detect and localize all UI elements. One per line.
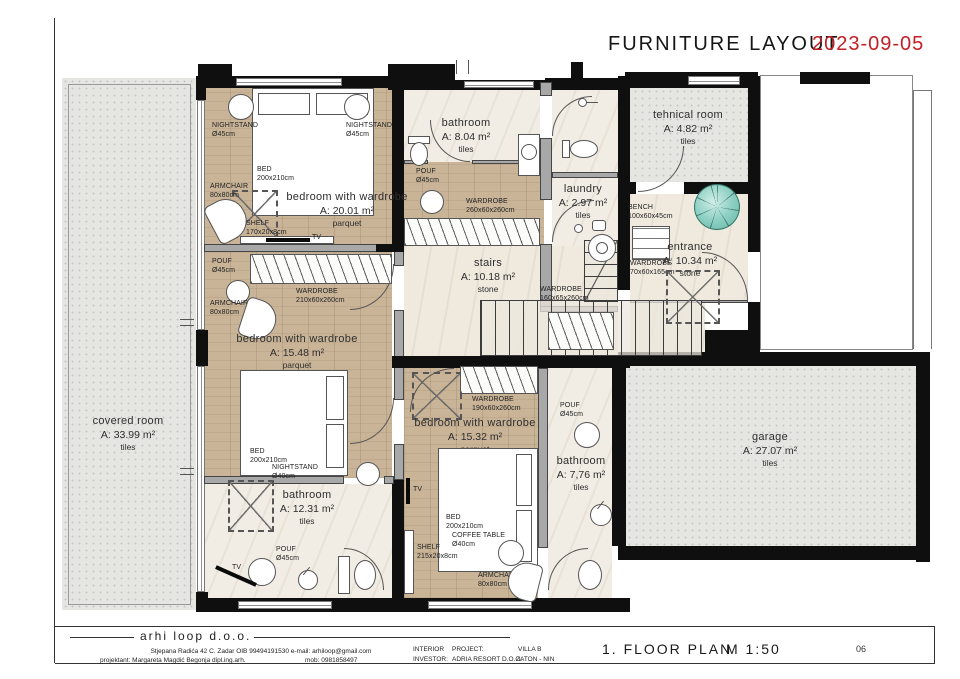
room-name: entrance [648, 240, 732, 255]
tv [406, 478, 410, 504]
room-area: A: 8.04 m² [428, 131, 504, 145]
room-name: bathroom [428, 116, 504, 131]
wall [748, 76, 760, 252]
furniture-size: Ø40cm [272, 473, 318, 482]
page-number: 06 [856, 644, 866, 654]
tv-label: TV [413, 486, 422, 495]
partition [540, 82, 552, 96]
wall [800, 72, 870, 84]
room-floor: tiles [548, 482, 614, 493]
sheet-border-left [54, 18, 55, 663]
furniture-label-bed1: BED 200x210cm [257, 166, 294, 184]
wall [392, 480, 404, 598]
wardrobe [548, 312, 614, 350]
room-floor: stone [446, 284, 530, 295]
laundry-fixture [574, 224, 583, 233]
sink [521, 144, 537, 160]
furniture-name: WARDROBE [466, 198, 515, 207]
room-label-covered: covered room A: 33.99 m² tiles [64, 414, 192, 454]
company-name: arhi loop d.o.o. [140, 629, 251, 643]
laundry-fixture [592, 220, 606, 231]
window [197, 100, 205, 330]
tv-label: TV [312, 234, 321, 243]
room-label-bathroom2: bathroom A: 12.31 m² tiles [240, 488, 374, 528]
sheet-border-right [934, 626, 935, 664]
pillow [516, 454, 532, 506]
toilet [570, 140, 598, 158]
partition [538, 368, 548, 548]
furniture-name: NIGHTSTAND [272, 464, 318, 473]
pillow [326, 424, 344, 468]
furniture-label-nightstand40: NIGHTSTAND Ø40cm [272, 464, 318, 482]
room-floor: tiles [548, 210, 618, 221]
room-floor: tiles [64, 442, 192, 453]
room-area: A: 33.99 m² [64, 429, 192, 443]
furniture-size: Ø45cm [560, 411, 583, 420]
footer-separator-line [55, 626, 935, 627]
room-label-garage: garage A: 27.07 m² tiles [712, 430, 828, 470]
furniture-label-wardrobe70: WARDROBE 70x60x165cm [630, 260, 664, 278]
room-area: A: 27.07 m² [712, 445, 828, 459]
company-address: Stjepana Radića 42 C. Zadar OIB 99494191… [96, 648, 426, 655]
wardrobe [460, 366, 538, 394]
furniture-label-nightstand-left: NIGHTSTAND Ø45cm [212, 122, 258, 140]
window [464, 81, 534, 88]
furniture-name: BENCH [628, 204, 673, 213]
furniture-name: ARMCHAIR [210, 300, 248, 309]
room-area: A: 15.32 m² [410, 431, 540, 445]
wardrobe [250, 254, 392, 284]
partition [394, 310, 404, 400]
toilet [410, 142, 428, 166]
project-value: VILLA B [518, 646, 542, 653]
plan-scale: M 1:50 [726, 641, 781, 657]
furniture-label-bed2: BED 200x210cm [250, 448, 287, 466]
tv [266, 238, 310, 242]
footer-dash-left [70, 637, 134, 638]
furniture-label-pouf1: POUF Ø45cm [416, 168, 439, 186]
furniture-size: Ø45cm [212, 131, 258, 140]
wall [196, 76, 206, 100]
wardrobe-dashed [666, 270, 720, 324]
room-area: A: 15.48 m² [230, 347, 364, 361]
room-area: A: 2.97 m² [548, 197, 618, 211]
mobile: mob: 0981858497 [305, 657, 357, 664]
furniture-size: 70x60x165cm [630, 269, 664, 278]
furniture-size: 260x60x260cm [466, 207, 515, 216]
room-name: bathroom [240, 488, 374, 503]
wall [748, 302, 760, 330]
wall [571, 62, 583, 84]
pouf [574, 422, 600, 448]
wall [376, 244, 404, 252]
furniture-name: POUF [416, 168, 439, 177]
window [428, 601, 532, 609]
window [236, 78, 342, 86]
furniture-label-pouf2: POUF Ø45cm [212, 258, 235, 276]
vanity [338, 556, 350, 594]
partition [384, 476, 394, 484]
furniture-size: 200x210cm [446, 523, 483, 532]
room-label-bedroom1: bedroom with wardrobe A: 20.01 m² parque… [280, 190, 414, 230]
furniture-size: Ø45cm [416, 177, 439, 186]
wall [196, 330, 208, 366]
room-floor: tiles [712, 458, 828, 469]
investor-label: INVESTOR: [413, 656, 448, 663]
furniture-name: POUF [276, 546, 299, 555]
furniture-name: NIGHTSTAND [346, 122, 392, 131]
furniture-name: POUF [560, 402, 583, 411]
room-label-bedroom2: bedroom with wardrobe A: 15.48 m² parque… [230, 332, 364, 372]
room-name: bedroom with wardrobe [410, 416, 540, 431]
coffee-table [498, 540, 524, 566]
partition [394, 444, 404, 480]
furniture-name: BED [257, 166, 294, 175]
furniture-size: Ø40cm [452, 541, 505, 550]
furniture-label-nightstand-right: NIGHTSTAND Ø45cm [346, 122, 392, 140]
toilet-tank [562, 140, 570, 158]
furniture-label-pouf3: POUF Ø45cm [276, 546, 299, 564]
furniture-size: 80x80cm [210, 192, 248, 201]
pouf [420, 190, 444, 214]
room-label-technical: tehnical room A: 4.82 m² tiles [640, 108, 736, 148]
furniture-label-armchair1: ARMCHAIR 80x80cm [210, 183, 248, 201]
investor-value: ADRIA RESORT D.O.O. [452, 656, 522, 663]
furniture-name: NIGHTSTAND [212, 122, 258, 131]
project-label: PROJECT: [452, 646, 483, 653]
terrace-area [760, 75, 913, 350]
room-floor: tiles [428, 144, 504, 155]
wall [625, 182, 636, 194]
drawing-date: 2023-09-05 [812, 33, 924, 56]
pillow [326, 376, 344, 420]
room-name: bedroom with wardrobe [280, 190, 414, 205]
wall [618, 546, 930, 560]
partition [204, 244, 380, 252]
tap-icon [586, 102, 598, 103]
covered-room-edge [68, 84, 191, 605]
room-label-stairs: stairs A: 10.18 m² stone [446, 256, 530, 296]
furniture-name: POUF [212, 258, 235, 267]
tv-label: TV [232, 564, 241, 573]
furniture-name: ARMCHAIR [210, 183, 248, 192]
room-area: A: 12.31 m² [240, 503, 374, 517]
furniture-label-wardrobe210: WARDROBE 210x60x260cm [296, 288, 345, 306]
room-name: garage [712, 430, 828, 445]
room-label-laundry: laundry A: 2.97 m² tiles [548, 182, 618, 222]
window [238, 601, 332, 609]
wall [545, 78, 625, 90]
room-name: bathroom [548, 454, 614, 469]
drawing-title: FURNITURE LAYOUT [608, 33, 840, 56]
room-area: A: 10.18 m² [446, 271, 530, 285]
sink [590, 504, 612, 526]
room-label-bathroom3: bathroom A: 7,76 m² tiles [548, 454, 614, 494]
room-area: A: 20.01 m² [280, 205, 414, 219]
furniture-size: 215x20x8cm [417, 553, 458, 562]
wardrobe [404, 218, 540, 246]
furniture-size: Ø45cm [346, 131, 392, 140]
room-floor: tiles [640, 136, 736, 147]
furniture-size: 170x20x8cm [246, 229, 287, 238]
room-area: A: 7,76 m² [548, 469, 614, 483]
toilet [354, 560, 376, 590]
furniture-label-pouf4: POUF Ø45cm [560, 402, 583, 420]
room-area: A: 4.82 m² [640, 123, 736, 137]
furniture-name: WARDROBE [630, 260, 664, 269]
nightstand [344, 94, 370, 120]
designer: projektant: Margareta Magdić Begonja dip… [100, 657, 246, 664]
plant [694, 184, 740, 230]
window [688, 76, 740, 85]
room-name: bedroom with wardrobe [230, 332, 364, 347]
technical-door-arc [638, 146, 684, 192]
dimension-tick [180, 325, 194, 326]
furniture-size: 200x210cm [257, 175, 294, 184]
furniture-label-coffee-table: COFFEE TABLE Ø40cm [452, 532, 505, 550]
room-name: laundry [548, 182, 618, 197]
wall [612, 366, 626, 546]
furniture-size: 210x60x260cm [296, 297, 345, 306]
furniture-label-bench: BENCH 100x60x45cm [628, 204, 673, 222]
nightstand [356, 462, 380, 486]
room-name: covered room [64, 414, 192, 429]
toilet [578, 560, 602, 590]
pillow [258, 93, 310, 115]
terrace-rail [913, 90, 932, 349]
furniture-name: BED [250, 448, 287, 457]
furniture-size: 160x65x260cm [540, 295, 589, 304]
furniture-name: BED [446, 514, 483, 523]
partition [552, 172, 618, 178]
furniture-label-wardrobe260: WARDROBE 260x60x260cm [466, 198, 515, 216]
footer-dash-right [254, 637, 510, 638]
furniture-size: Ø45cm [212, 267, 235, 276]
furniture-size: Ø45cm [276, 555, 299, 564]
location: ZATON - NIN [516, 656, 554, 663]
furniture-label-wardrobe190: WARDROBE 190x60x260cm [472, 396, 521, 414]
nightstand [228, 94, 254, 120]
room-floor: tiles [240, 516, 374, 527]
plan-title: 1. FLOOR PLAN [602, 641, 732, 657]
dimension-tick [180, 468, 194, 469]
drawing-sheet: FURNITURE LAYOUT 2023-09-05 [0, 0, 960, 679]
interior-label: INTERIOR [413, 646, 444, 653]
furniture-size: 190x60x260cm [472, 405, 521, 414]
room-floor: parquet [280, 218, 414, 229]
furniture-name: WARDROBE [540, 286, 589, 295]
shower [412, 372, 462, 420]
dimension-tick [468, 60, 469, 74]
shelf [404, 530, 414, 594]
room-label-bathroom1: bathroom A: 8.04 m² tiles [428, 116, 504, 156]
furniture-name: WARDROBE [472, 396, 521, 405]
sink [298, 570, 318, 590]
furniture-size: 100x60x45cm [628, 213, 673, 222]
dimension-tick [180, 474, 194, 475]
dimension-tick [180, 319, 194, 320]
wall [916, 352, 930, 562]
furniture-name: WARDROBE [296, 288, 345, 297]
room-name: tehnical room [640, 108, 736, 123]
furniture-label-bed3: BED 200x210cm [446, 514, 483, 532]
furniture-name: COFFEE TABLE [452, 532, 505, 541]
dimension-tick [456, 60, 457, 74]
room-name: stairs [446, 256, 530, 271]
washing-machine-drum [596, 242, 608, 254]
furniture-label-wardrobe160: WARDROBE 160x65x260cm [540, 286, 589, 304]
